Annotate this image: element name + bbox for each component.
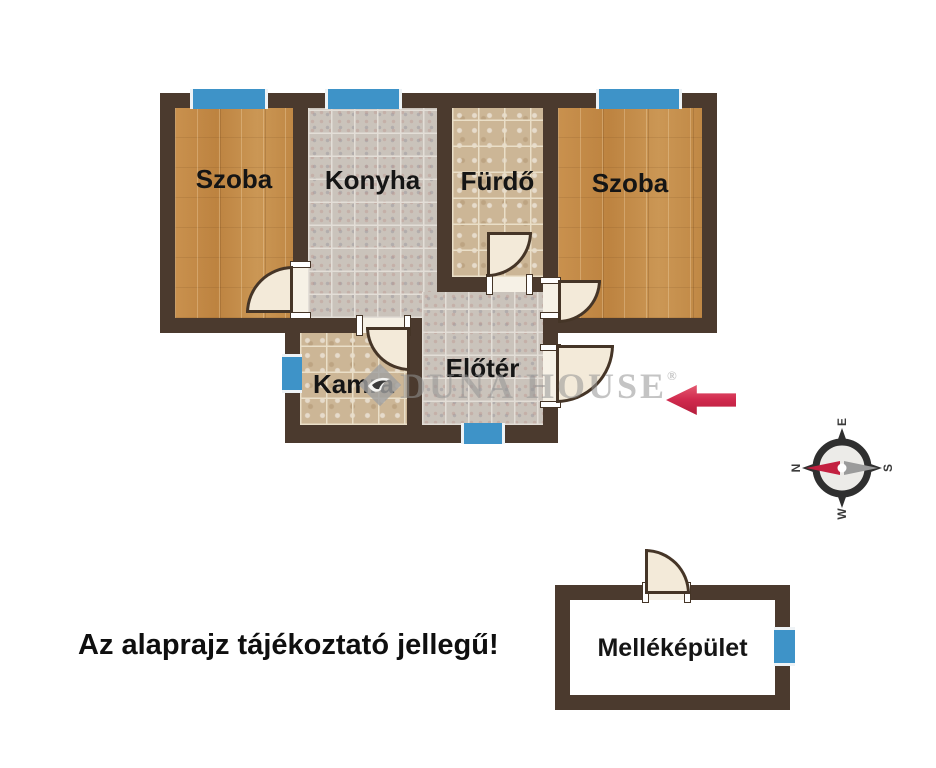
wall-mellek-bottom: [555, 695, 790, 710]
watermark-brand-text: DUNA HOUSE: [400, 366, 667, 406]
floor-plan-canvas: Szoba Konyha Fürdő Szoba Kamra Előtér DU…: [0, 0, 936, 768]
floor-konyha: [308, 108, 437, 318]
window-mellek: [774, 627, 795, 666]
window-szoba-left: [190, 89, 268, 109]
window-konyha: [325, 89, 402, 109]
watermark-brand: DUNA HOUSE®: [400, 365, 677, 407]
room-label-mellekepulet: Melléképület: [570, 634, 775, 663]
wall-right: [702, 93, 717, 333]
disclaimer-text: Az alaprajz tájékoztató jellegű!: [78, 629, 499, 662]
wall-eloter-szoba: [543, 93, 558, 278]
compass-label-south: S: [881, 464, 894, 472]
wall-annex-bottom: [285, 425, 558, 443]
room-label-konyha: Konyha: [308, 165, 437, 196]
window-kamra: [282, 354, 302, 393]
wall-left: [160, 93, 175, 333]
compass-label-east: E: [835, 418, 849, 426]
room-label-szoba-left: Szoba: [175, 164, 293, 195]
wall-kamra-top-a: [300, 318, 357, 333]
window-szoba-right: [596, 89, 682, 109]
threshold-szoba-left-door: [293, 262, 308, 318]
wall-furdo-bottom-a: [437, 277, 487, 292]
duna-house-diamond-logo-icon: [352, 357, 408, 413]
wall-szoba-konyha: [293, 108, 308, 262]
threshold-furdo-door: [487, 277, 532, 292]
wall-annex-right-b: [543, 407, 558, 443]
compass-label-north: N: [790, 464, 803, 473]
wall-konyha-furdo: [437, 108, 452, 292]
room-label-szoba-right: Szoba: [558, 168, 702, 199]
window-eloter: [461, 423, 505, 444]
compass-rose-icon: E N S W: [790, 416, 894, 520]
registered-mark: ®: [667, 368, 677, 383]
wall-mellek-left: [555, 585, 570, 710]
compass-label-west: W: [835, 508, 849, 520]
threshold-szoba-right-door: [543, 278, 558, 318]
door-arc-mellek: [645, 549, 690, 594]
room-label-furdo: Fürdő: [452, 166, 543, 197]
